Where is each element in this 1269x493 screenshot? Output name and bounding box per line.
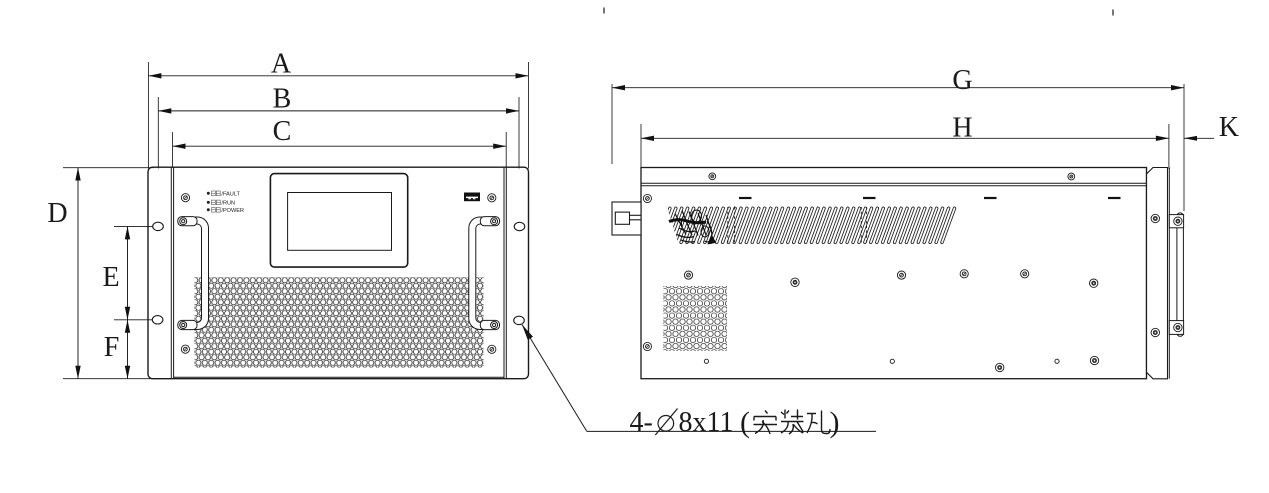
svg-text:K: K xyxy=(1219,112,1239,143)
svg-text:/RUN: /RUN xyxy=(221,201,235,207)
svg-text:A: A xyxy=(271,49,292,80)
svg-text:): ) xyxy=(830,406,840,439)
svg-text:8x11: 8x11 xyxy=(679,407,734,438)
svg-text:C: C xyxy=(273,116,292,147)
svg-text:H: H xyxy=(952,113,972,144)
svg-text:4-: 4- xyxy=(630,407,653,438)
svg-text:G: G xyxy=(952,65,972,96)
svg-text:B: B xyxy=(273,84,292,115)
svg-text:/POWER: /POWER xyxy=(221,208,244,214)
svg-text:F: F xyxy=(104,332,120,363)
svg-text:D: D xyxy=(47,198,67,229)
svg-text:/FAULT: /FAULT xyxy=(221,192,240,198)
svg-text:E: E xyxy=(102,262,119,293)
svg-text:(: ( xyxy=(740,406,750,439)
